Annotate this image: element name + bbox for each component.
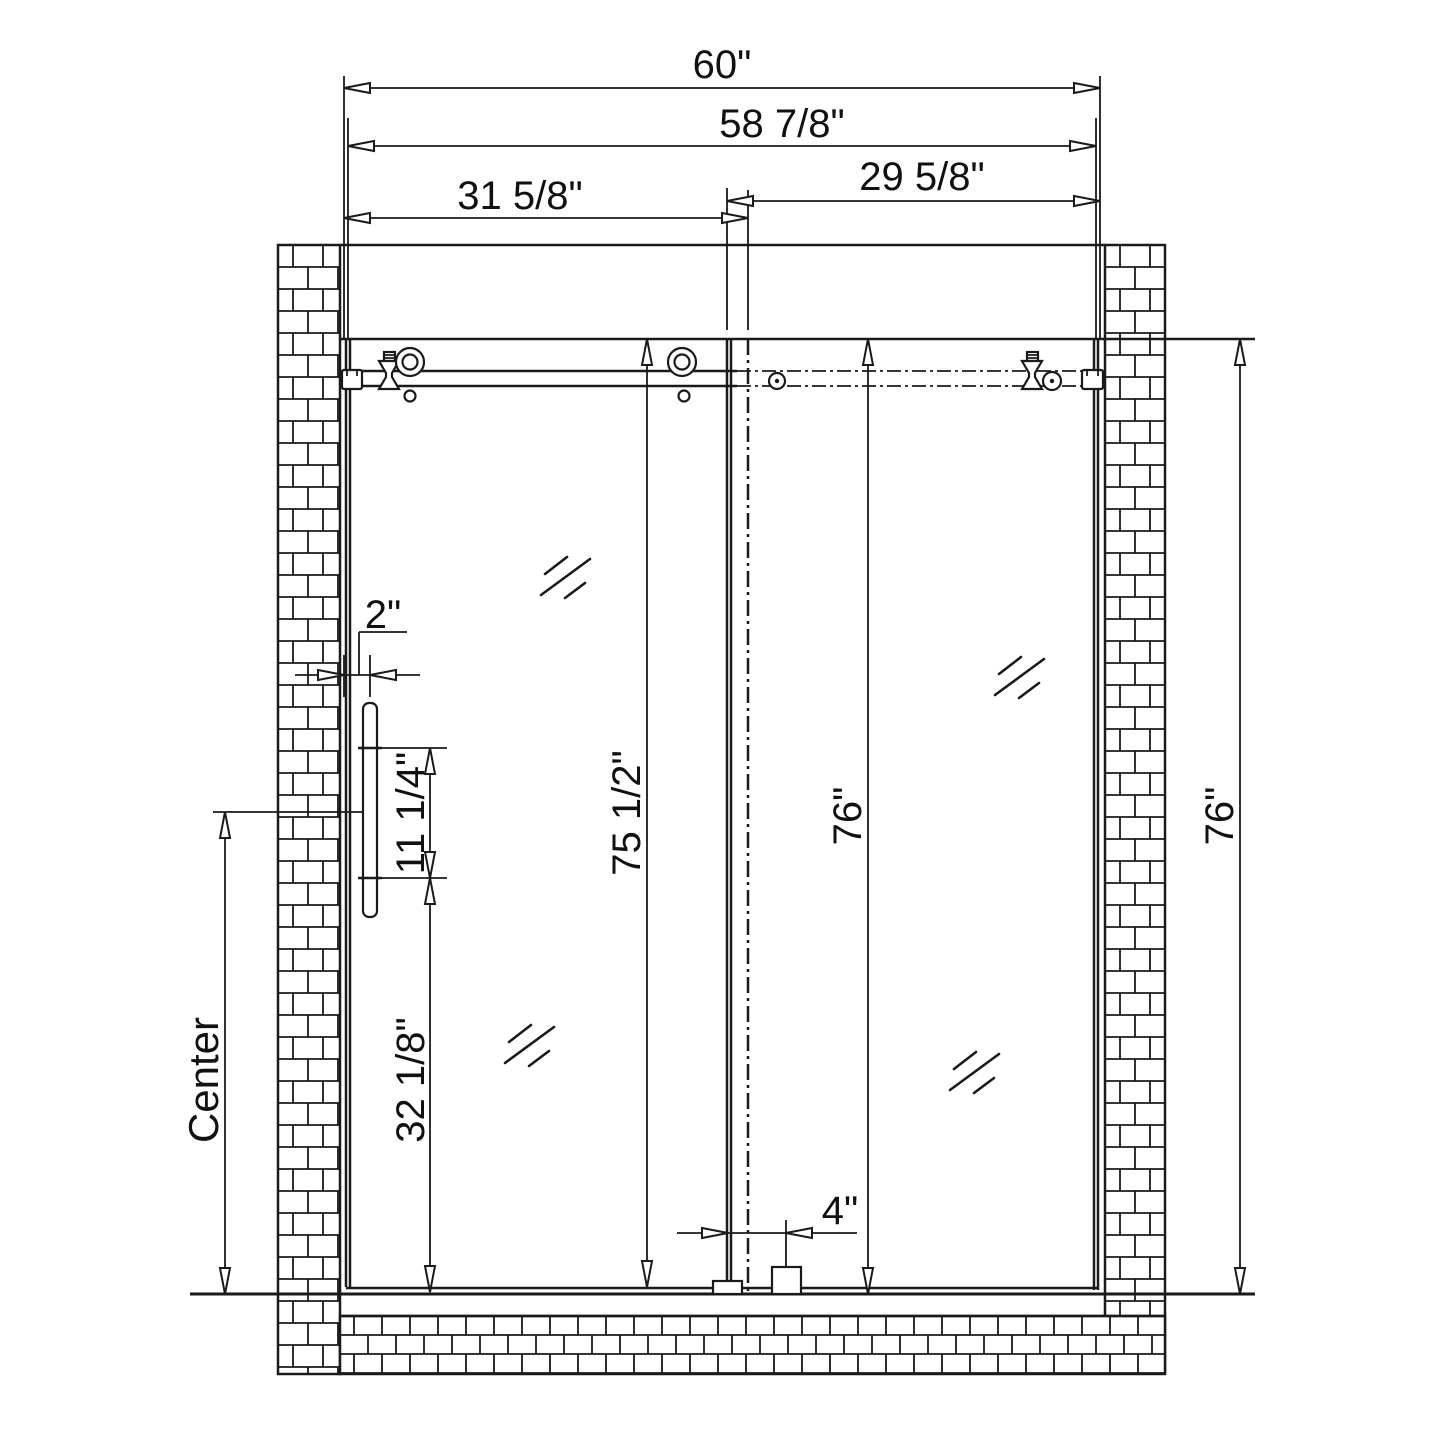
shine-mark-left-lower (505, 1025, 554, 1066)
left-panel-width-label: 31 5/8" (457, 174, 582, 218)
floor-curb (340, 1316, 1165, 1374)
handle-center-height-label: 32 1/8" (389, 1017, 433, 1142)
door-height-label: 75 1/2" (605, 750, 649, 875)
roller-rear-right-icon (1043, 372, 1061, 390)
handle-offset-label: 2" (365, 593, 401, 637)
door-bottom-guide (713, 1281, 742, 1294)
shine-mark-right-upper (995, 657, 1044, 698)
dimension-opening-height: 76" (1198, 339, 1245, 1294)
dimension-panel-height: 76" (826, 339, 873, 1294)
left-wall-bracket-icon (342, 370, 362, 389)
right-wall-bracket-icon (1082, 370, 1103, 389)
glass-shine-marks (505, 557, 1044, 1093)
center-label: Center (180, 1017, 227, 1143)
shower-door-dimension-drawing: 60" 58 7/8" 31 5/8" 29 5/8" 2" 11 1/4" (0, 0, 1445, 1445)
door-handle (358, 703, 382, 917)
dimension-bottom-guide-offset: 4" (677, 1189, 858, 1238)
right-wall (1105, 245, 1165, 1372)
roller-front-right-icon (668, 348, 696, 402)
floor-guide-block (772, 1267, 801, 1294)
roller-front-left-icon (396, 348, 424, 402)
shine-mark-right-lower (950, 1052, 999, 1093)
handle-hole-spacing-label: 11 1/4" (389, 752, 433, 874)
dimension-left-panel-width: 31 5/8" (344, 174, 748, 223)
drawing-canvas: 60" 58 7/8" 31 5/8" 29 5/8" 2" 11 1/4" (0, 0, 1445, 1445)
opening-height-label: 76" (1198, 787, 1242, 846)
panel-height-label: 76" (826, 787, 870, 846)
left-wall (278, 245, 340, 1374)
shine-mark-left-upper (541, 557, 590, 598)
dimension-right-panel-width: 29 5/8" (727, 155, 1100, 206)
top-rail (360, 371, 1082, 386)
fixed-panel (748, 339, 1098, 1294)
overall-width-label: 60" (693, 43, 752, 87)
roller-rear-left-icon (769, 373, 785, 389)
dimension-handle-center-height: 32 1/8" (389, 878, 435, 1292)
dimension-overall-width: 60" (344, 43, 1100, 93)
right-panel-width-label: 29 5/8" (859, 155, 984, 199)
dimension-door-height: 75 1/2" (605, 339, 652, 1287)
dimension-center: Center (180, 812, 230, 1294)
dimension-glass-width: 58 7/8" (348, 102, 1096, 151)
glass-width-label: 58 7/8" (719, 102, 844, 146)
bottom-guide-offset-label: 4" (822, 1189, 858, 1233)
